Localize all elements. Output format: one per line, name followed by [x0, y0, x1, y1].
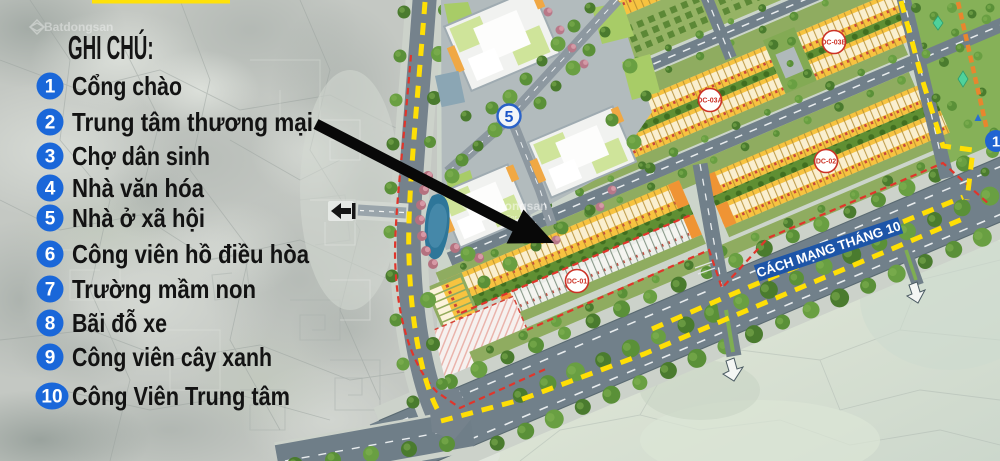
svg-text:DC-02: DC-02	[816, 159, 836, 166]
svg-text:DC-03B: DC-03B	[821, 40, 846, 47]
svg-text:7: 7	[45, 280, 56, 301]
svg-text:DC-01: DC-01	[567, 279, 587, 286]
svg-text:5: 5	[505, 109, 514, 126]
svg-text:Cổng chào: Cổng chào	[72, 71, 182, 101]
svg-text:Trung tâm thương mại: Trung tâm thương mại	[72, 107, 313, 137]
svg-text:GHI CHÚ:: GHI CHÚ:	[68, 28, 154, 66]
svg-text:Công viên hồ điều hòa: Công viên hồ điều hòa	[72, 239, 309, 269]
svg-text:Nhà văn hóa: Nhà văn hóa	[72, 173, 204, 203]
svg-text:Trường mầm non: Trường mầm non	[72, 274, 256, 304]
svg-text:Công viên cây xanh: Công viên cây xanh	[72, 342, 272, 372]
svg-text:1: 1	[45, 77, 56, 98]
svg-text:10: 10	[41, 387, 62, 408]
svg-text:5: 5	[45, 209, 56, 230]
svg-text:2: 2	[45, 113, 56, 134]
svg-text:8: 8	[45, 314, 56, 335]
svg-text:1: 1	[992, 134, 1000, 151]
svg-text:Bãi đỗ xe: Bãi đỗ xe	[72, 308, 167, 338]
svg-text:Chợ dân sinh: Chợ dân sinh	[72, 141, 210, 171]
svg-text:Công Viên Trung tâm: Công Viên Trung tâm	[72, 381, 290, 411]
svg-text:4: 4	[45, 179, 56, 200]
svg-text:DC-03A: DC-03A	[697, 98, 722, 105]
svg-text:9: 9	[45, 348, 56, 369]
svg-text:6: 6	[45, 245, 56, 266]
svg-text:Nhà ở xã hội: Nhà ở xã hội	[72, 203, 205, 233]
svg-text:3: 3	[45, 147, 56, 168]
